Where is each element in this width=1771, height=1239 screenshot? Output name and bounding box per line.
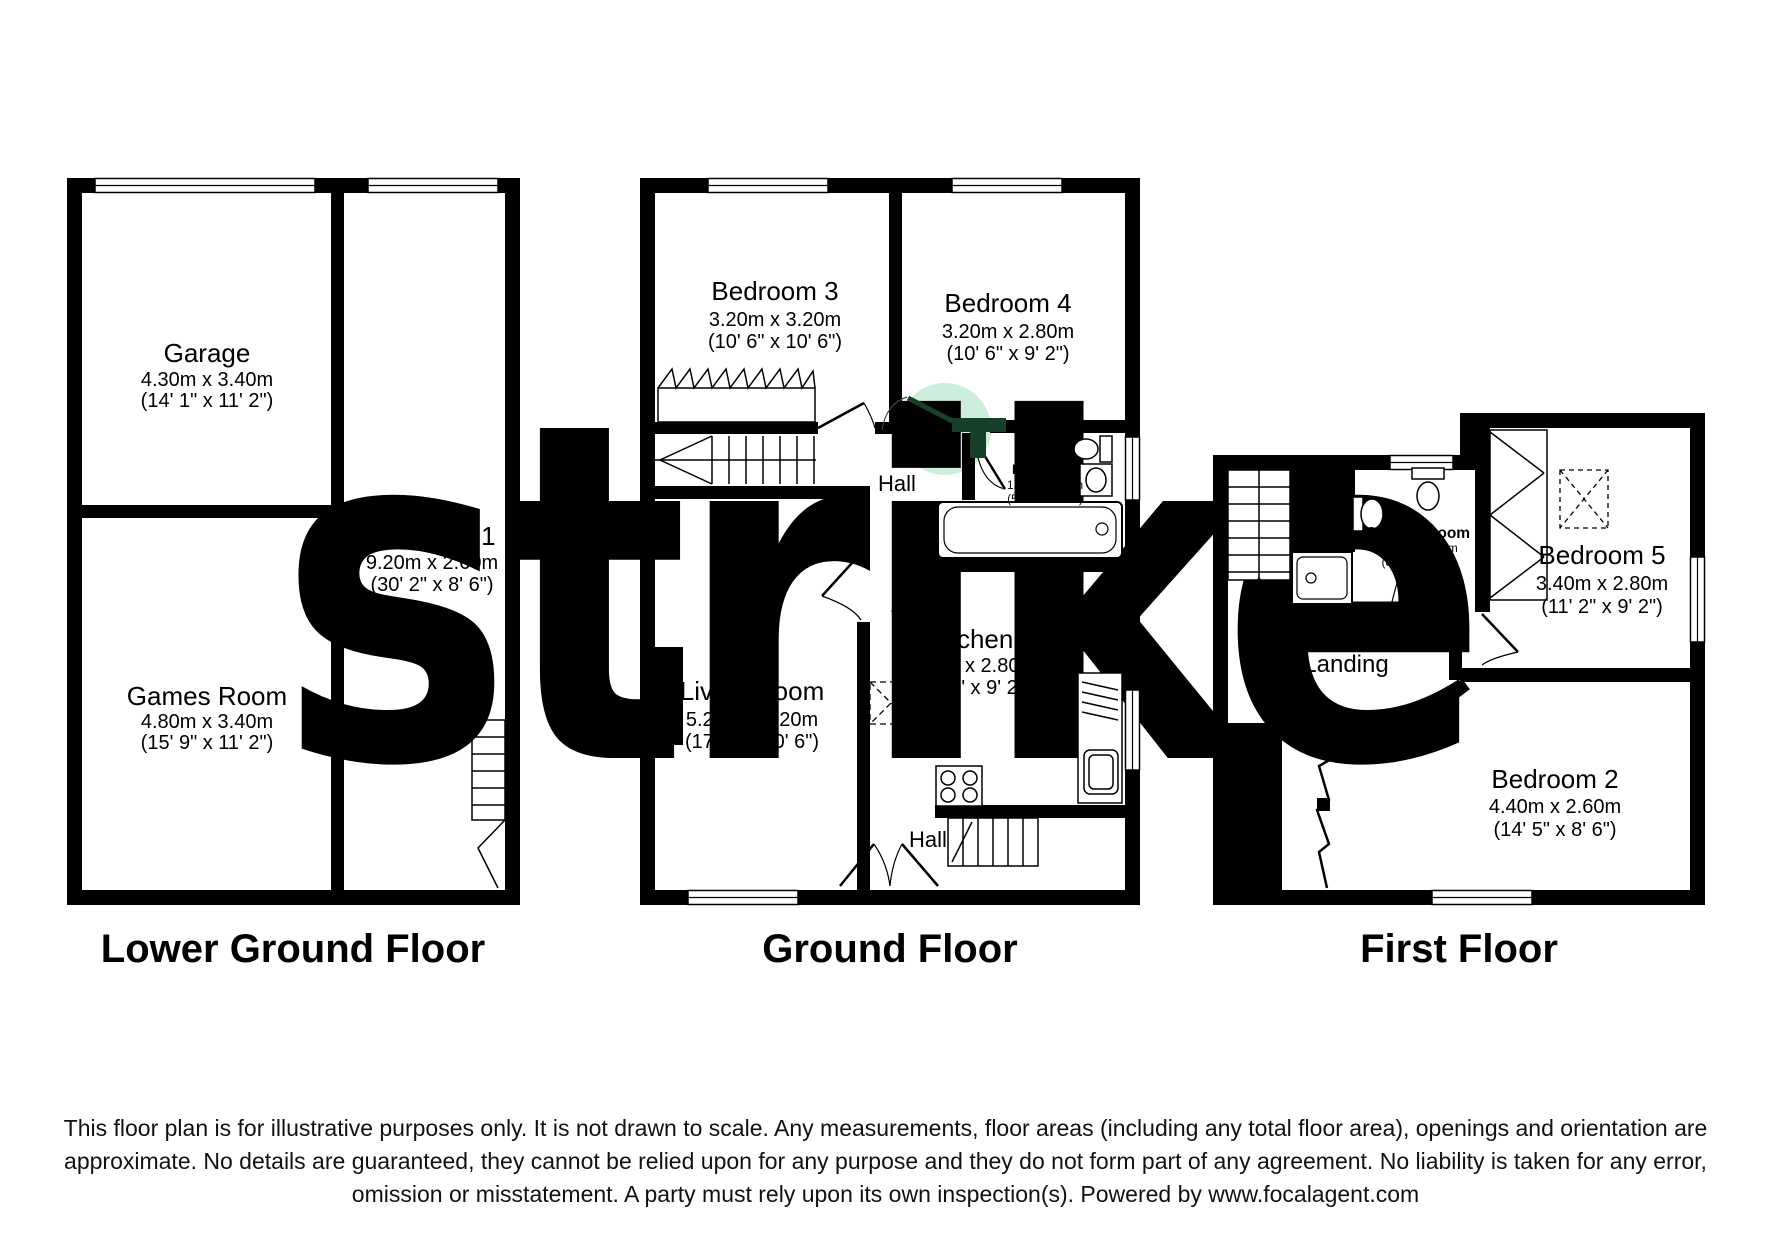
garage-room-label: Garage 4.30m x 3.40m (14' 1" x 11' 2") [141, 338, 274, 412]
svg-text:Bathroom: Bathroom [1012, 461, 1078, 477]
svg-text:(10' 6" x 9' 2"): (10' 6" x 9' 2") [947, 343, 1070, 365]
svg-text:Kitchen: Kitchen [927, 624, 1014, 654]
svg-text:Garage: Garage [164, 338, 251, 368]
stairs-icon [948, 818, 1038, 866]
svg-text:1.80m x 1.80m: 1.80m x 1.80m [1007, 480, 1083, 492]
svg-text:2.50m x 1.80m: 2.50m x 1.80m [1378, 541, 1457, 555]
svg-text:(30' 2" x 8' 6"): (30' 2" x 8' 6") [371, 574, 494, 596]
svg-text:Bedroom 4: Bedroom 4 [944, 288, 1071, 318]
bedroom-5-room-label: Bedroom 5 3.40m x 2.80m (11' 2" x 9' 2") [1536, 540, 1668, 618]
floorplan-page: strike Garage 4.30m x 3.40m [0, 0, 1771, 1239]
bedroom-4-room-label: Bedroom 4 3.20m x 2.80m (10' 6" x 9' 2") [942, 288, 1074, 365]
games-room-label: Games Room 4.80m x 3.40m (15' 9" x 11' 2… [127, 681, 287, 754]
svg-text:Games Room: Games Room [127, 681, 287, 711]
bedroom-1-room-label: Bedroom 1 9.20m x 2.60m (30' 2" x 8' 6") [366, 521, 498, 596]
svg-text:(17' 1" x 10' 6"): (17' 1" x 10' 6") [685, 731, 819, 753]
first-floor-title: First Floor [1360, 927, 1558, 971]
svg-text:(10' 6" x 9' 2"): (10' 6" x 9' 2") [909, 677, 1032, 699]
disclaimer-text: This floor plan is for illustrative purp… [20, 1112, 1751, 1211]
svg-text:3.40m x 2.80m: 3.40m x 2.80m [1536, 573, 1668, 595]
svg-text:Bedroom 2: Bedroom 2 [1491, 764, 1618, 794]
bedroom-3-room-label: Bedroom 3 3.20m x 3.20m (10' 6" x 10' 6"… [708, 276, 842, 353]
hob-icon [936, 766, 982, 806]
bedroom-2-room-label: Bedroom 2 4.40m x 2.60m (14' 5" x 8' 6") [1489, 764, 1621, 841]
svg-text:Living Room: Living Room [680, 676, 825, 706]
bathroom-room-label: Bathroom 1.80m x 1.80m (5' 11" x 5' 11") [1007, 461, 1083, 506]
floorplan-canvas: strike Garage 4.30m x 3.40m [0, 0, 1771, 1239]
door-jamb [970, 432, 986, 458]
lower-ground-floor-title: Lower Ground Floor [101, 927, 485, 971]
landing-label: Landing [1303, 651, 1388, 678]
svg-text:(15' 9" x 11' 2"): (15' 9" x 11' 2") [141, 732, 274, 754]
shower-tray-icon [1292, 552, 1352, 604]
skylight-icon [1560, 470, 1608, 528]
living-room-label: Living Room 5.20m x 3.20m (17' 1" x 10' … [680, 676, 825, 753]
svg-text:Shower Room: Shower Room [1366, 525, 1470, 542]
svg-text:4.30m x 3.40m: 4.30m x 3.40m [141, 369, 273, 391]
svg-text:3.20m x 3.20m: 3.20m x 3.20m [709, 309, 841, 331]
counter-sink-icon [1078, 673, 1122, 803]
bathtub-icon [938, 502, 1122, 558]
door-jamb [952, 418, 1006, 432]
sink-icon [1080, 464, 1112, 496]
svg-text:(14' 1" x 11' 2"): (14' 1" x 11' 2") [141, 390, 274, 412]
svg-text:Bedroom 1: Bedroom 1 [368, 521, 495, 551]
svg-text:5.20m x 3.20m: 5.20m x 3.20m [686, 709, 818, 731]
svg-text:3.20m x 2.80m: 3.20m x 2.80m [942, 321, 1074, 343]
svg-text:(11' 2" x 9' 2"): (11' 2" x 9' 2") [1541, 596, 1663, 618]
window [95, 179, 498, 193]
hall-upper-label: Hall [878, 471, 916, 496]
svg-text:(5' 11" x 5' 11"): (5' 11" x 5' 11") [1007, 494, 1083, 506]
ground-floor-title: Ground Floor [762, 927, 1018, 971]
svg-text:Bedroom 5: Bedroom 5 [1538, 540, 1665, 570]
svg-text:(14' 5" x 8' 6"): (14' 5" x 8' 6") [1494, 819, 1617, 841]
svg-text:3.20m x 2.80m: 3.20m x 2.80m [904, 655, 1036, 677]
svg-text:Bedroom 3: Bedroom 3 [711, 276, 838, 306]
svg-text:(10' 6" x 10' 6"): (10' 6" x 10' 6") [708, 331, 842, 353]
svg-text:4.40m x 2.60m: 4.40m x 2.60m [1489, 796, 1621, 818]
hall-lower-label: Hall [909, 827, 947, 852]
svg-text:9.20m x 2.60m: 9.20m x 2.60m [366, 552, 498, 574]
svg-text:(8' 2" x 5' 11"): (8' 2" x 5' 11") [1382, 555, 1455, 569]
svg-text:4.80m x 3.40m: 4.80m x 3.40m [141, 711, 273, 733]
